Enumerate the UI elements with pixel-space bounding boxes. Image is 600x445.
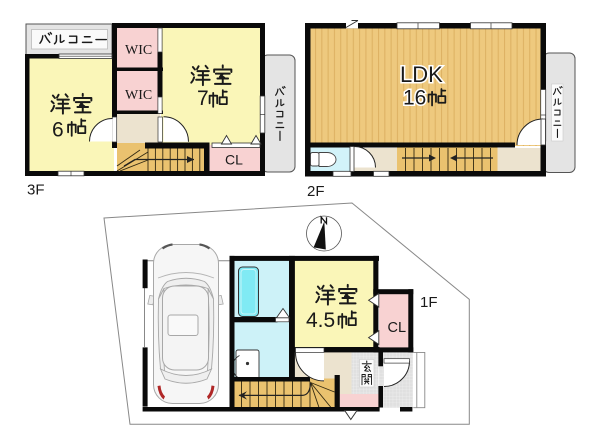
- svg-text:7: 7: [197, 87, 209, 110]
- svg-text:6: 6: [52, 119, 64, 142]
- svg-text:1F: 1F: [420, 294, 438, 311]
- svg-text:WIC: WIC: [125, 43, 152, 58]
- svg-text:LDK: LDK: [400, 62, 443, 87]
- svg-text:CL: CL: [225, 152, 243, 168]
- svg-text:16: 16: [403, 87, 426, 110]
- svg-text:CL: CL: [388, 320, 407, 336]
- svg-text:2F: 2F: [307, 183, 325, 200]
- svg-text:3F: 3F: [27, 182, 45, 199]
- svg-text:4.5: 4.5: [306, 309, 335, 332]
- svg-text:WIC: WIC: [125, 88, 152, 103]
